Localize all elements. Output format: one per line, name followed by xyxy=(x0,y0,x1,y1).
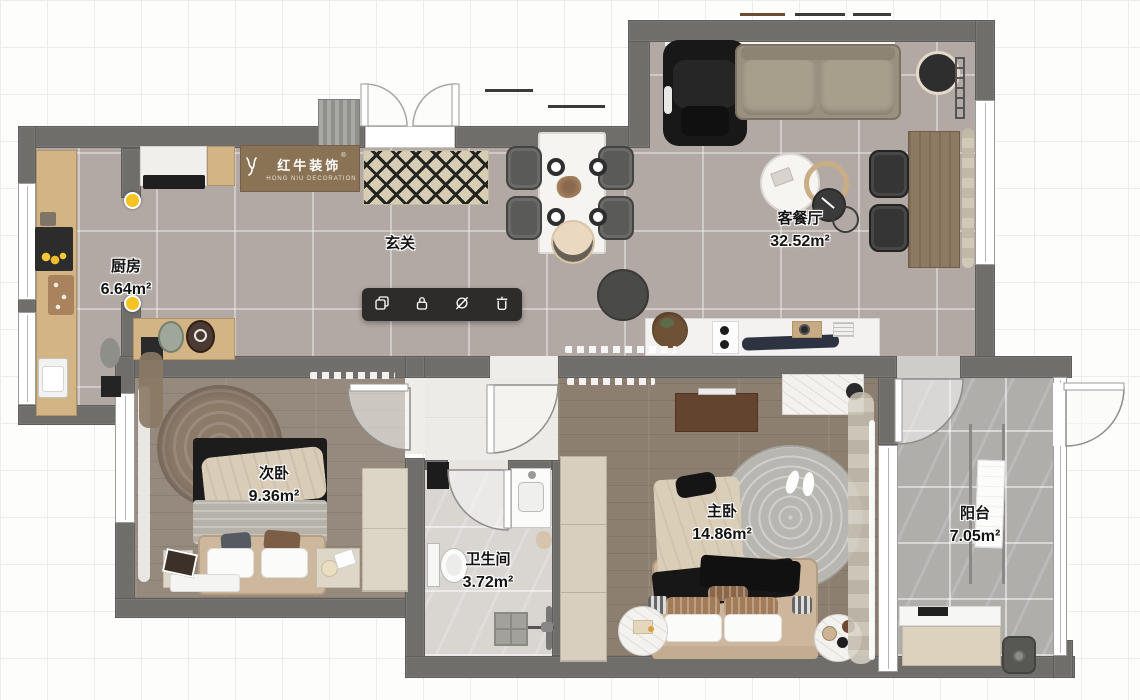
nightstand-right-bowl-1 xyxy=(822,626,837,641)
dining-chair-1[interactable] xyxy=(506,146,542,190)
wall-bedroom2-right-top[interactable] xyxy=(405,356,425,378)
kitchen-black-box[interactable] xyxy=(101,376,121,397)
nightstand-left-dot xyxy=(648,626,654,632)
floorplan-canvas: 红牛装饰 ® HONG NIU DECORATION xyxy=(0,0,1140,700)
delete-button[interactable] xyxy=(491,292,513,317)
laundry-cabinet-item xyxy=(918,607,948,616)
entry-door-left-arc[interactable] xyxy=(365,84,407,126)
curtain-living-right[interactable] xyxy=(962,128,974,268)
checker-pillow-right xyxy=(792,596,812,614)
radiator-master xyxy=(567,378,655,385)
curtain-bedroom2-drape xyxy=(139,352,163,428)
entry-door-leaf-left[interactable] xyxy=(361,84,368,126)
dimension-line-1 xyxy=(485,89,533,92)
plate-2 xyxy=(589,158,607,176)
wall-master-balcony[interactable] xyxy=(878,377,898,445)
wall-kitchen-stub-top[interactable] xyxy=(121,148,141,198)
entry-threshold xyxy=(365,126,455,148)
threshold-bedroom2 xyxy=(405,378,425,454)
master-pillow-white-1 xyxy=(664,614,722,642)
drying-towel[interactable] xyxy=(974,460,1005,549)
master-pillow-white-2 xyxy=(724,614,782,642)
vanity-plant-leaves xyxy=(660,318,674,328)
lock-button[interactable] xyxy=(411,292,433,317)
massage-chair-back xyxy=(673,60,737,108)
range-hood[interactable] xyxy=(143,175,205,189)
side-table-round[interactable] xyxy=(916,51,960,95)
dimension-line-5 xyxy=(853,13,891,16)
window-living[interactable] xyxy=(975,100,995,265)
duplicate-button[interactable] xyxy=(371,292,393,317)
logo-plaque[interactable]: 红牛装饰 ® HONG NIU DECORATION xyxy=(240,145,360,192)
bedroom2-bench[interactable] xyxy=(170,574,240,592)
master-headboard xyxy=(652,646,818,659)
threshold-hallway xyxy=(490,356,558,378)
laundry-cabinet-body[interactable] xyxy=(902,626,1001,666)
toilet-tank[interactable] xyxy=(427,543,440,587)
logo-subtitle-text: HONG NIU DECORATION xyxy=(266,176,356,182)
radiator-living xyxy=(565,346,677,353)
coffee-table-ring-2[interactable] xyxy=(832,206,859,233)
wall-bedroom2-bottom[interactable] xyxy=(115,598,425,618)
shoe-cabinet[interactable] xyxy=(318,99,360,146)
hide-button[interactable] xyxy=(451,292,473,317)
selection-toolbar xyxy=(362,288,522,321)
window-kitchen-2[interactable] xyxy=(18,312,36,405)
bathroom-niche[interactable] xyxy=(427,462,449,489)
vanity-faucet-1 xyxy=(720,326,729,335)
threshold-balcony-outer xyxy=(1053,383,1067,446)
balcony-outer-door-arc[interactable] xyxy=(1066,388,1124,446)
plate-4 xyxy=(589,208,607,226)
entry-door-right-arc[interactable] xyxy=(413,84,455,126)
towel-ladder[interactable] xyxy=(955,57,965,119)
threshold-balcony xyxy=(897,356,960,378)
sofa-cushion-right xyxy=(820,60,894,115)
study-desk[interactable] xyxy=(908,131,960,268)
floor-pouf[interactable] xyxy=(597,269,649,321)
vanity-plant[interactable] xyxy=(652,312,688,348)
lemons-decor xyxy=(41,251,67,265)
wall-bedroom2-right[interactable] xyxy=(405,458,425,678)
kitchen-basin[interactable] xyxy=(158,321,184,353)
eye-off-icon xyxy=(453,294,471,315)
shower-head xyxy=(541,622,553,632)
copy-icon xyxy=(373,294,391,315)
sofa-cushion-left xyxy=(742,60,816,115)
window-bedroom2[interactable] xyxy=(115,393,135,523)
sofa-back xyxy=(741,47,895,60)
toilet-seat xyxy=(446,554,462,576)
dimension-line-3 xyxy=(740,13,785,16)
bedroom2-pillow-white-2 xyxy=(261,548,308,578)
trash-icon xyxy=(493,294,511,315)
master-wardrobe[interactable] xyxy=(560,456,607,662)
kitchen-counter-top-wood[interactable] xyxy=(207,146,235,186)
logo-registered-mark: ® xyxy=(341,153,345,159)
kitchen-jars[interactable] xyxy=(40,212,56,226)
desk-chair-1[interactable] xyxy=(869,150,909,198)
light-marker-2[interactable] xyxy=(124,295,141,312)
dimension-line-2 xyxy=(548,105,605,108)
washbasin-bowl xyxy=(518,482,544,512)
curtain-master-sheer xyxy=(869,420,875,660)
washbasin-faucet xyxy=(528,471,536,479)
drying-rack-rail-1[interactable] xyxy=(969,424,972,584)
entry-door-leaf-right[interactable] xyxy=(452,84,459,126)
bedroom2-wardrobe[interactable] xyxy=(362,468,408,592)
entry-doormat[interactable] xyxy=(363,150,489,205)
window-kitchen-1[interactable] xyxy=(18,183,36,300)
desk-chair-2[interactable] xyxy=(869,204,909,252)
nightstand-right-bowl-3 xyxy=(837,637,848,648)
dimension-line-4 xyxy=(795,13,845,16)
bathroom-plant xyxy=(536,531,552,549)
wall-mid-right[interactable] xyxy=(960,356,1072,378)
logo-bull-icon xyxy=(243,155,261,182)
lock-icon xyxy=(413,294,431,315)
cutting-board[interactable] xyxy=(48,275,74,315)
dining-chair-3[interactable] xyxy=(506,196,542,240)
vanity-box[interactable] xyxy=(833,322,854,337)
logo-brand-text: 红牛装饰 xyxy=(277,155,341,174)
threshold-bathroom xyxy=(448,460,508,470)
floor-hallway[interactable] xyxy=(425,378,558,462)
laundry-cabinet-top[interactable] xyxy=(899,606,1001,626)
balcony-outer-door-leaf[interactable] xyxy=(1064,383,1124,390)
mop-sink-drain xyxy=(1013,650,1025,662)
washer-knob xyxy=(799,324,810,335)
window-master-balcony[interactable] xyxy=(878,445,898,672)
plate-1 xyxy=(547,158,565,176)
vanity-faucet-2 xyxy=(720,340,729,349)
rice-cooker-ring xyxy=(194,329,207,342)
light-marker-1[interactable] xyxy=(124,192,141,209)
massage-chair-seat xyxy=(681,106,729,136)
kitchen-trash-bin[interactable] xyxy=(100,338,120,368)
massage-chair-armrest-left xyxy=(664,86,672,114)
shower-drain[interactable] xyxy=(494,612,528,646)
kitchen-sink-basin xyxy=(42,366,64,392)
dining-stool[interactable] xyxy=(551,220,595,264)
tv-screen[interactable] xyxy=(698,388,736,395)
wall-top-right[interactable] xyxy=(628,20,995,42)
tv-console[interactable] xyxy=(675,393,758,432)
radiator-bedroom2 xyxy=(310,372,395,379)
